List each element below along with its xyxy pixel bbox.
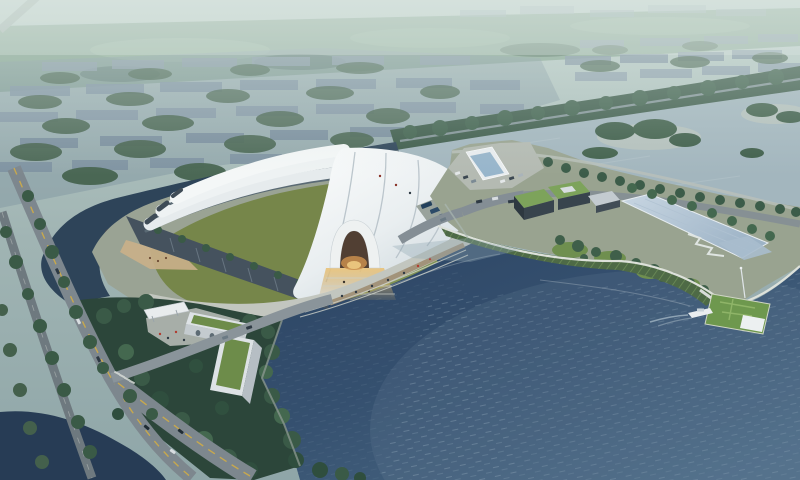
boat-cabin: [697, 309, 704, 312]
aerial-rendering: [0, 0, 800, 480]
rendering-canvas: [0, 0, 800, 480]
horizon-haze: [0, 0, 800, 55]
